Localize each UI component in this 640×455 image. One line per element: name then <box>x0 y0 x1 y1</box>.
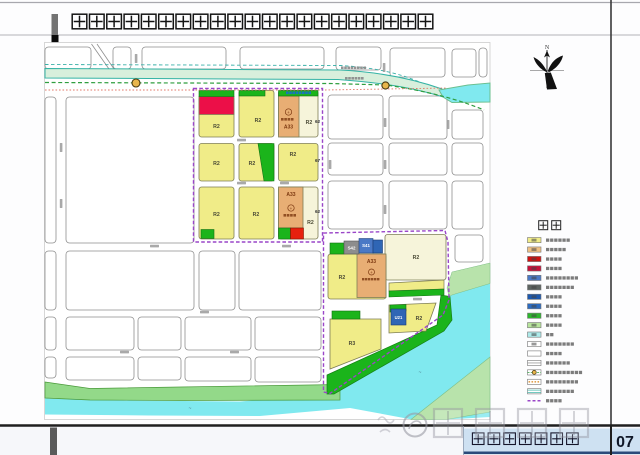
svg-text:~: ~ <box>189 406 192 412</box>
svg-text:R2: R2 <box>255 118 262 124</box>
svg-text:07: 07 <box>616 434 634 451</box>
svg-text:A33: A33 <box>284 125 293 131</box>
svg-text:R2: R2 <box>290 152 297 158</box>
svg-text:R2: R2 <box>306 120 313 126</box>
svg-text:R2: R2 <box>253 212 260 218</box>
svg-text:+: + <box>287 110 290 115</box>
svg-text:S41: S41 <box>362 243 370 248</box>
svg-text:R2: R2 <box>413 255 420 261</box>
svg-text:R2: R2 <box>416 316 423 322</box>
svg-text:62: 62 <box>315 119 321 124</box>
svg-text:R2: R2 <box>213 161 220 167</box>
svg-text:+: + <box>290 206 293 211</box>
svg-text:+: + <box>370 270 373 275</box>
svg-text:R3: R3 <box>349 341 356 347</box>
svg-text:R2: R2 <box>307 220 314 226</box>
svg-text:R2: R2 <box>213 124 220 130</box>
svg-text:U21: U21 <box>395 315 403 320</box>
svg-text:R2: R2 <box>249 161 256 167</box>
svg-text:62: 62 <box>315 209 321 214</box>
svg-text:R2: R2 <box>213 212 220 218</box>
svg-text:A33: A33 <box>286 192 295 198</box>
svg-text:A33: A33 <box>367 259 376 265</box>
svg-text:67: 67 <box>315 158 321 163</box>
svg-text:~: ~ <box>419 370 422 376</box>
svg-text:R2: R2 <box>339 275 346 281</box>
svg-text:S42: S42 <box>348 246 356 251</box>
